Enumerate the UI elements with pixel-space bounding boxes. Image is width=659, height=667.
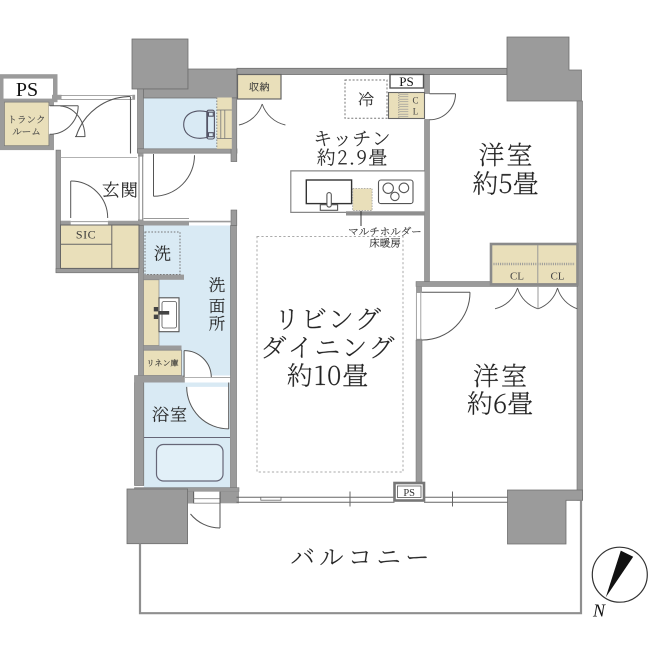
- svg-text:CL: CL: [550, 271, 564, 283]
- svg-text:SIC: SIC: [76, 228, 96, 242]
- svg-text:L: L: [413, 107, 419, 117]
- svg-text:PS: PS: [16, 79, 38, 101]
- svg-text:CL: CL: [510, 271, 524, 283]
- svg-text:PS: PS: [399, 74, 413, 89]
- svg-text:C: C: [412, 96, 418, 106]
- svg-text:PS: PS: [403, 488, 415, 499]
- svg-text:N: N: [592, 601, 606, 621]
